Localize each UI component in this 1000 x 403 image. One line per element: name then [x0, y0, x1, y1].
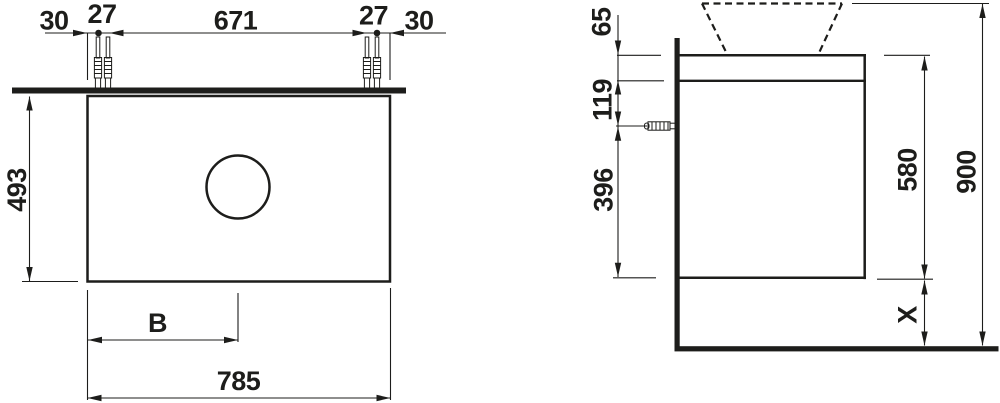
- dim-label-gap-left: 27: [87, 0, 116, 29]
- mounting-dowel: [363, 37, 370, 88]
- dim-dot: [374, 30, 381, 37]
- dim-chain-top: 30 27 671 27 30: [39, 0, 446, 80]
- dim-label-floor-clearance: X: [893, 306, 923, 324]
- dim-label-cabinet-height: 493: [2, 168, 32, 212]
- dim-label-overhang-left: 30: [39, 6, 68, 36]
- dim-B: B: [88, 290, 239, 400]
- dim-label-total-height: 900: [952, 150, 982, 194]
- mounting-dowel-side: [645, 122, 677, 130]
- cabinet-front: [88, 96, 391, 282]
- dowel-sleeve: [364, 78, 369, 88]
- dowel-thread: [104, 58, 111, 79]
- washbasin-dashed-outline: [702, 4, 842, 55]
- arrow-left-icon: [88, 395, 102, 401]
- dowel-shaft: [106, 37, 110, 58]
- dowel-thread: [363, 58, 370, 79]
- dim-label-center-offset: B: [148, 308, 167, 338]
- dowel-sleeve: [105, 78, 110, 88]
- floor-line: [675, 346, 999, 351]
- dim-X: X: [893, 281, 928, 346]
- dowel-thread-hatch: [104, 62, 111, 74]
- dim-label-gap-right: 27: [359, 1, 388, 31]
- dowel-thread-hatch: [363, 62, 370, 74]
- dim-493: 493: [2, 97, 78, 282]
- arrow-down-icon: [921, 332, 927, 346]
- dim-label-top-rail: 65: [587, 7, 617, 37]
- dim-785: 785: [88, 288, 391, 401]
- arrow-down-icon: [615, 41, 621, 55]
- front-view: 30 27 671 27 30 493 B: [2, 0, 446, 401]
- dowel-sleeve: [95, 78, 100, 88]
- dim-label-carcass-height: 580: [893, 148, 923, 192]
- mounting-dowel: [104, 37, 111, 88]
- dim-column-left: 65 119 396: [587, 7, 665, 278]
- countertop: [12, 88, 406, 94]
- arrow-left-icon: [110, 30, 124, 36]
- dowel-thread-hatch: [94, 62, 101, 74]
- dowel-sleeve: [374, 78, 379, 88]
- mounting-dowel: [373, 37, 380, 88]
- arrow-up-icon: [615, 127, 621, 141]
- dowel-thread-hatch: [373, 62, 380, 74]
- dim-580: 580: [877, 55, 933, 279]
- dim-label-cabinet-width: 785: [217, 366, 261, 396]
- dim-label-overhang-right: 30: [404, 6, 433, 36]
- cutout-circle: [207, 156, 270, 219]
- dowel-thread: [648, 122, 670, 130]
- arrow-down-icon: [921, 265, 927, 279]
- dowel-thread-hatch: [652, 122, 668, 130]
- mounting-dowel: [94, 37, 101, 88]
- dowel-shaft: [375, 37, 379, 58]
- arrow-down-icon: [979, 332, 985, 346]
- arrow-down-icon: [615, 263, 621, 277]
- dim-label-dowel-span: 671: [214, 6, 258, 36]
- arrow-right-icon: [353, 30, 367, 36]
- dowel-shaft: [365, 37, 369, 58]
- dim-label-dowel-to-bottom: 396: [589, 168, 619, 212]
- arrow-up-icon: [26, 97, 32, 111]
- dowel-thread: [94, 58, 101, 79]
- technical-drawing-vanity: 30 27 671 27 30 493 B: [0, 0, 1000, 403]
- arrow-right-icon: [224, 337, 238, 343]
- dowel-shaft: [96, 37, 100, 58]
- arrow-left-icon: [88, 337, 102, 343]
- wall-line: [675, 38, 680, 351]
- arrow-up-icon: [921, 57, 927, 71]
- side-view: 65 119 396 580 X 900: [587, 4, 999, 352]
- arrow-down-icon: [26, 267, 32, 281]
- dim-label-rail-to-dowel: 119: [588, 78, 618, 121]
- dowel-thread: [373, 58, 380, 79]
- arrow-up-icon: [979, 4, 985, 18]
- arrow-right-icon: [377, 395, 391, 401]
- arrow-up-icon: [921, 281, 927, 295]
- cabinet-side: [678, 54, 866, 279]
- drawing-canvas: 30 27 671 27 30 493 B: [0, 0, 1000, 403]
- arrow-right-icon: [73, 30, 87, 36]
- dim-dot: [95, 30, 102, 37]
- arrow-left-icon: [390, 30, 404, 36]
